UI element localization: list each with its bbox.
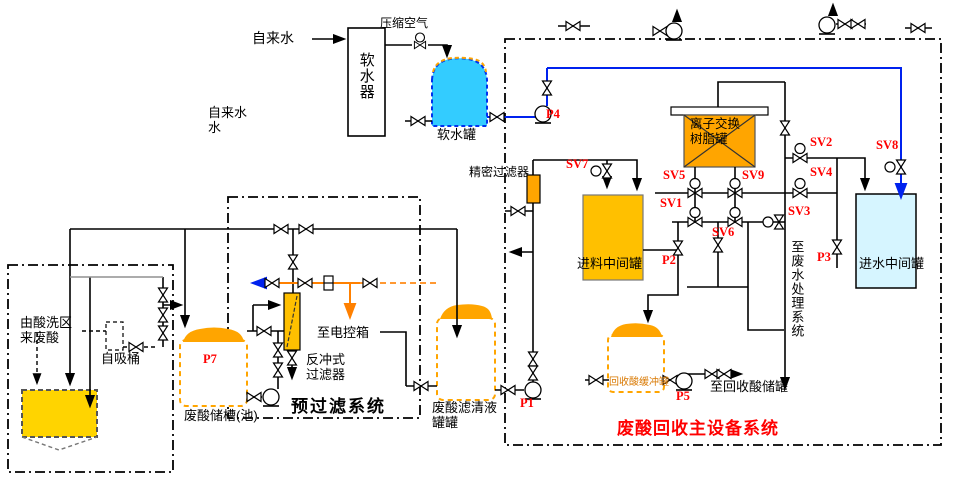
valve-icon (529, 366, 538, 380)
title-main-system: 废酸回收主设备系统 (617, 419, 779, 439)
pipe (648, 222, 678, 321)
pump-label-p1: P1 (520, 396, 534, 411)
self-priming-barrel-shape (106, 322, 123, 350)
valve-icon (414, 382, 428, 391)
waste-acid-pit-shape (180, 340, 247, 406)
valve-icon (274, 363, 283, 377)
pump-icon (666, 23, 682, 40)
valve-label-sv3: SV3 (788, 204, 810, 219)
pump-label-p5: P5 (676, 389, 690, 404)
valve-icon (511, 207, 525, 216)
label-to-wastewater: 至废水处理系统 (789, 240, 804, 338)
valve-icon (274, 225, 288, 234)
valve-icon (529, 352, 538, 366)
valve-label-sv4: SV4 (810, 165, 832, 180)
soft-water-tank-shape (432, 58, 487, 126)
valve-p3-icon (833, 240, 842, 254)
filtrate-tank-shape (437, 318, 495, 400)
valve-icon (851, 20, 865, 29)
resin-tank-lid (671, 107, 768, 115)
pump-label-p7: P7 (203, 352, 217, 367)
prefilter-border (228, 197, 420, 418)
valve-icon (838, 20, 852, 29)
label-ion-exchange-tank: 离子交换 树脂罐 (690, 117, 740, 147)
label-backwash-filter: 反冲式 过滤器 (306, 352, 345, 383)
waste-acid-pool-funnel (22, 437, 97, 450)
valve-icon (490, 113, 504, 122)
label-self-priming-barrel: 自吸桶 (101, 351, 140, 366)
valve-icon (714, 238, 723, 252)
solenoid-sv2-icon (793, 144, 807, 163)
process-flow-diagram: 自来水 自来水 水 压缩空气 软水器 软水罐 精密过滤器 离子交换 树脂罐 进料… (0, 0, 958, 498)
label-buffer-tank: 回收酸缓冲罐 (609, 377, 669, 389)
valve-icon (247, 393, 261, 402)
valve-icon (543, 81, 552, 95)
valve-icon (257, 327, 271, 336)
label-tap-water-left: 自来水 水 (208, 105, 247, 136)
pump-icon (263, 389, 279, 406)
pump-label-p3: P3 (817, 250, 831, 265)
label-waste-acid-pit: 废酸储槽(池) (184, 408, 258, 423)
label-tap-water: 自来水 (252, 30, 294, 47)
solenoid-sv7-icon (591, 164, 612, 178)
label-compressed-air: 压缩空气 (380, 16, 428, 30)
label-filtrate-tank: 废酸滤清液 罐罐 (432, 400, 497, 431)
valve-icon (159, 288, 168, 302)
valve-icon (501, 386, 515, 395)
filtrate-tank-cap (440, 304, 492, 319)
valve-icon (911, 24, 925, 33)
label-feed-tank: 进料中间罐 (577, 256, 642, 271)
waste-acid-pit-cap (183, 328, 244, 343)
pipe (748, 222, 784, 330)
valve-label-sv2: SV2 (810, 135, 832, 150)
valve-icon (274, 343, 283, 357)
valve-icon (363, 279, 377, 288)
valve-icon (589, 376, 603, 385)
pump-p5-icon (676, 373, 692, 390)
valve-icon (299, 225, 313, 234)
buffer-tank-cap (611, 323, 662, 337)
valve-icon (265, 279, 279, 288)
label-inlet-water-tank: 进水中间罐 (859, 256, 924, 271)
pump-label-p4: P4 (546, 107, 560, 122)
valve-icon (717, 370, 731, 379)
valve-icon (653, 27, 667, 36)
valve-icon (159, 326, 168, 340)
pipe (718, 82, 785, 107)
label-precision-filter: 精密过滤器 (469, 165, 529, 179)
valve-label-sv8: SV8 (876, 138, 898, 153)
label-to-recovered-acid-tank: 至回收酸储罐 (710, 379, 788, 394)
valve-icon (566, 22, 580, 31)
solenoid-sv4-icon (793, 179, 807, 198)
valve-icon (781, 121, 790, 135)
valve-label-sv1: SV1 (660, 196, 682, 211)
title-prefilter: 预过滤系统 (291, 397, 386, 417)
pipe (380, 332, 406, 386)
solenoid-sv6-icon (728, 208, 742, 227)
valve-icon (411, 117, 425, 126)
valve-label-sv7: SV7 (566, 157, 588, 172)
label-water-softener: 软水器 (357, 52, 375, 100)
valve-icon (159, 308, 168, 322)
valve-icon (288, 351, 297, 365)
label-to-control-box: 至电控箱 (317, 325, 369, 340)
pump-icon (819, 17, 835, 34)
inlet-water-tank-shape (856, 194, 916, 288)
precision-filter-shape (527, 175, 540, 203)
label-from-pickling: 由酸洗区 来废酸 (20, 315, 72, 346)
solenoid-sv8-icon (885, 160, 906, 174)
pump-label-p2: P2 (662, 253, 676, 268)
valve-icon (289, 255, 298, 269)
valve-label-sv6: SV6 (712, 225, 734, 240)
ball-valve-icon (414, 33, 425, 49)
valve-icon (298, 279, 312, 288)
valve-label-sv9: SV9 (742, 168, 764, 183)
waste-acid-pool-shape (22, 390, 97, 437)
pipe (428, 45, 447, 56)
label-soft-water-tank: 软水罐 (437, 127, 476, 142)
valve-label-sv5: SV5 (663, 168, 685, 183)
solenoid-sv1-icon (688, 208, 702, 227)
